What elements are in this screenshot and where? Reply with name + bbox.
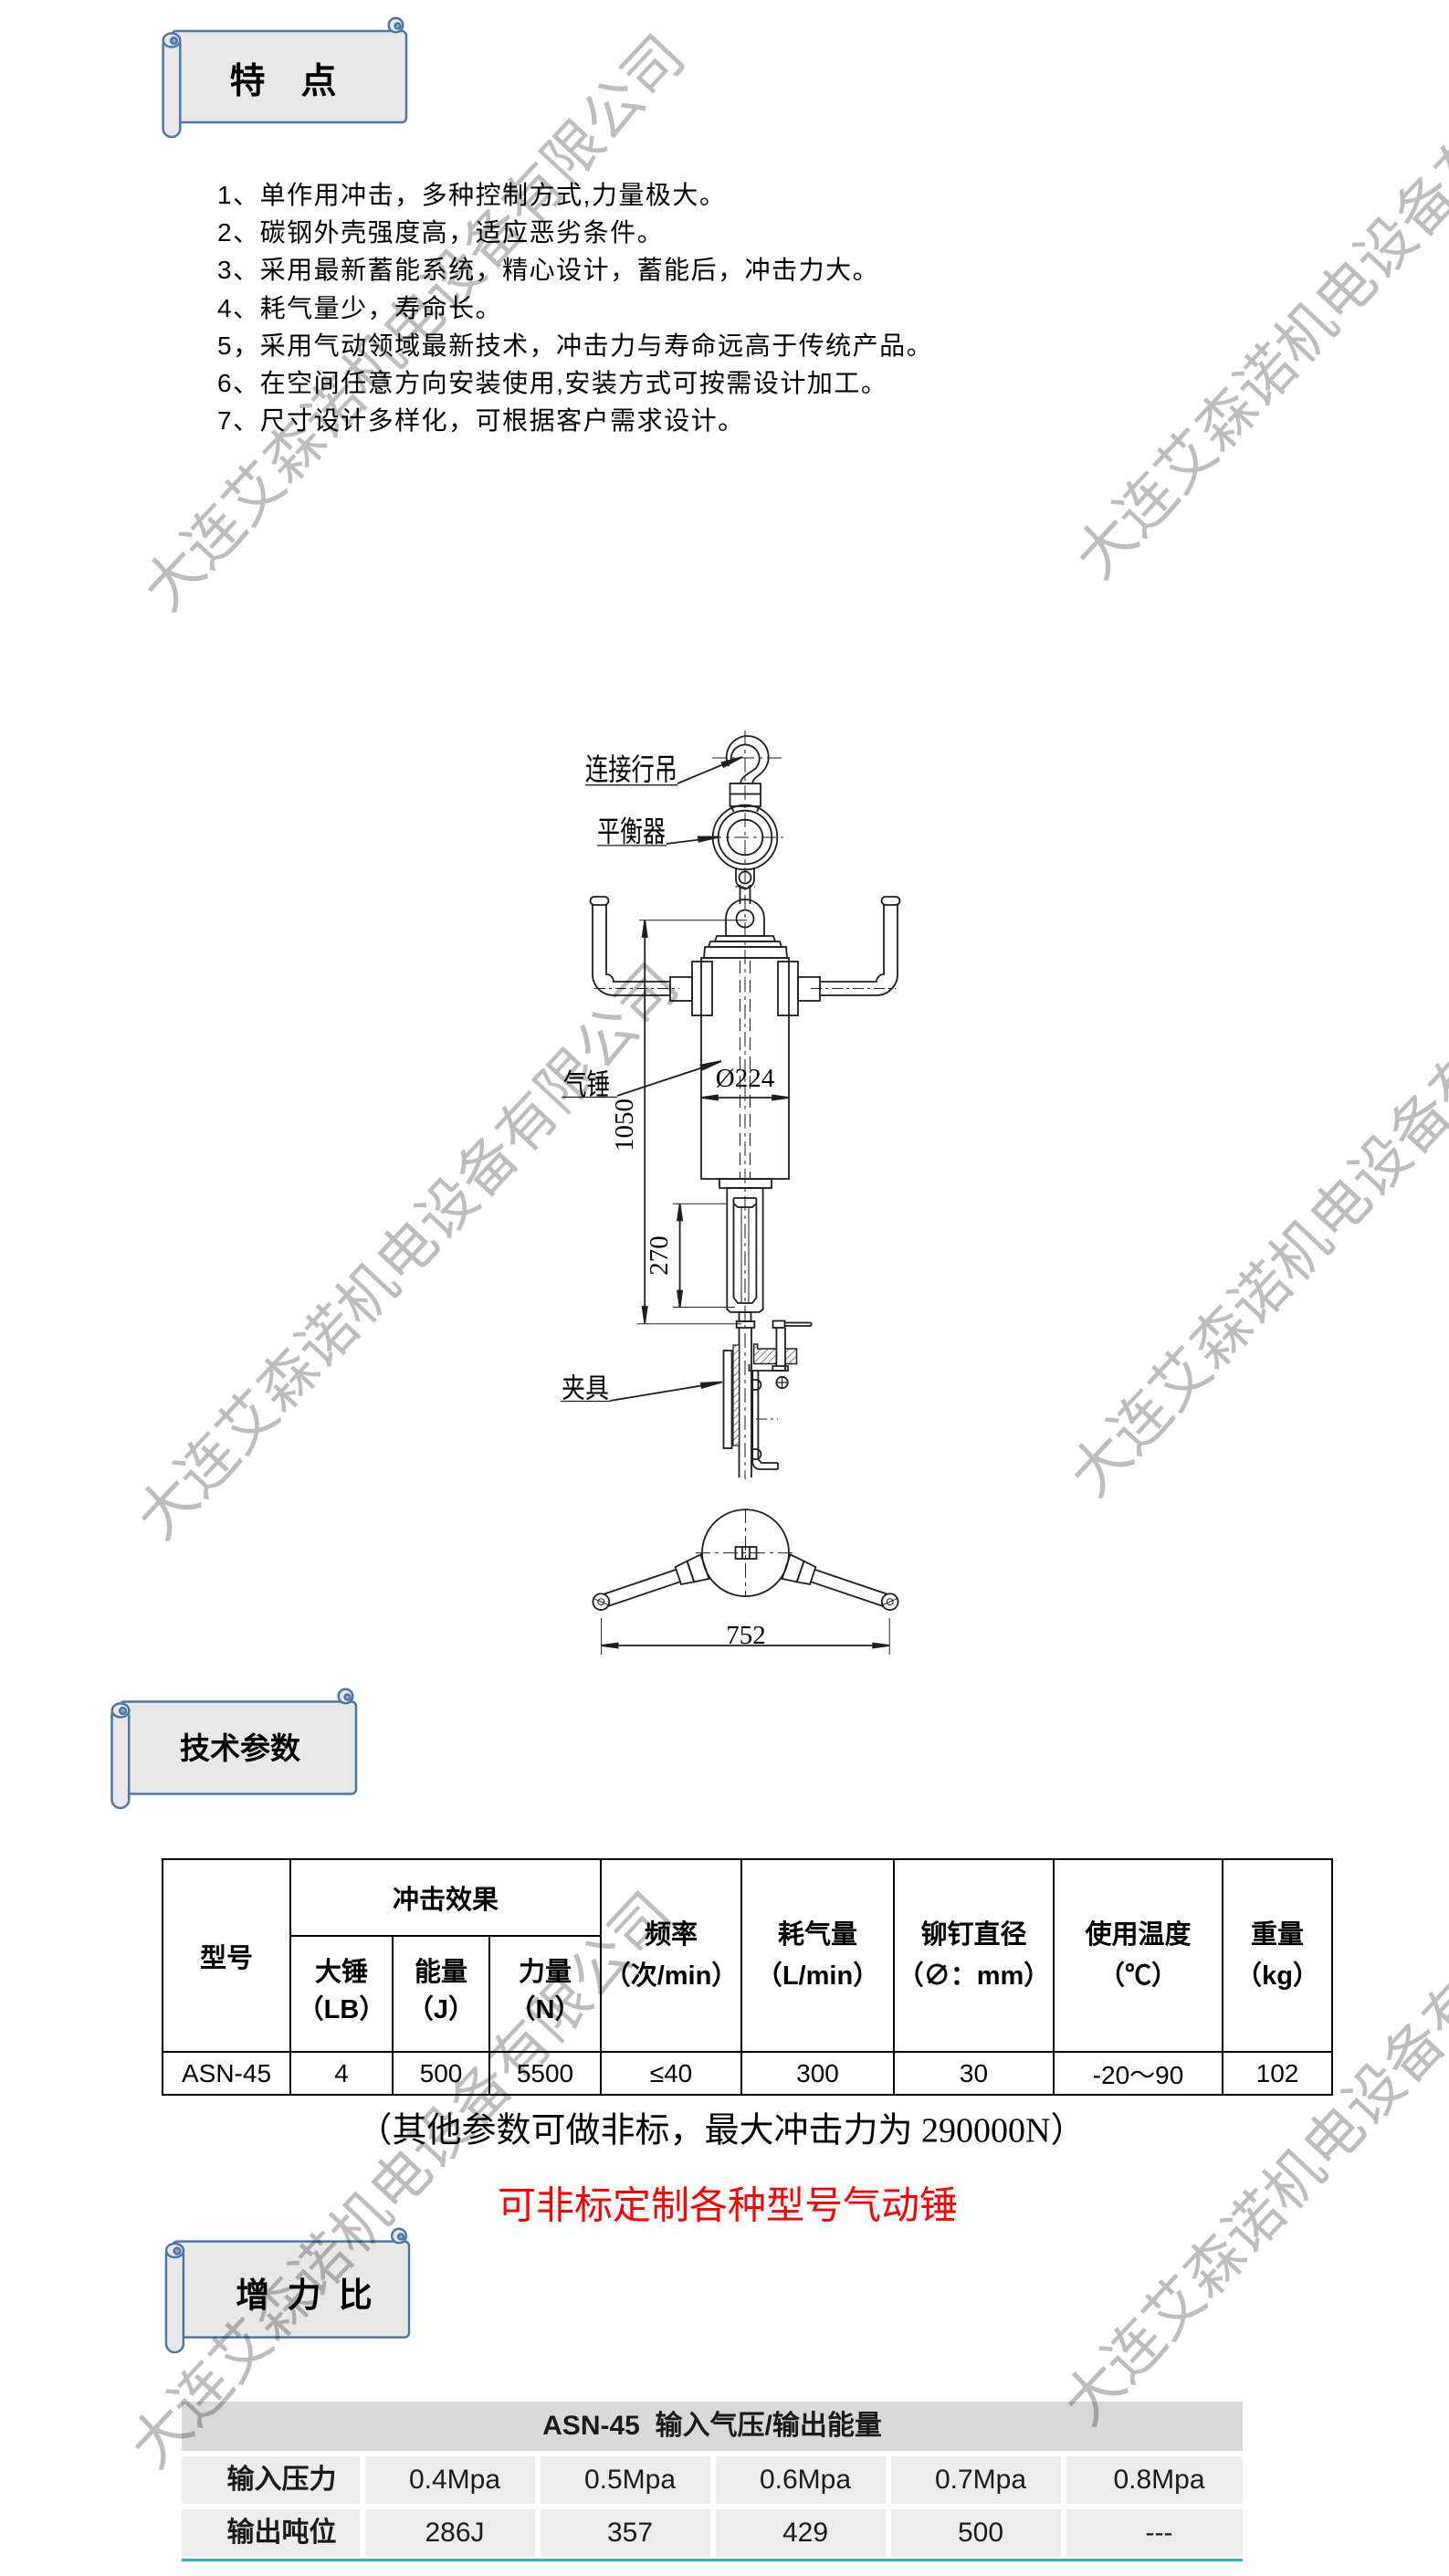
svg-text:大连艾森诺机电设备有限公司: 大连艾森诺机电设备有限公司	[1057, 909, 1449, 1509]
svg-text:大连艾森诺机电设备有限公司: 大连艾森诺机电设备有限公司	[1063, 0, 1449, 591]
svg-text:大连艾森诺机电设备有限公司: 大连艾森诺机电设备有限公司	[131, 24, 697, 623]
svg-text:大连艾森诺机电设备有限公司: 大连艾森诺机电设备有限公司	[124, 952, 690, 1551]
svg-text:大连艾森诺机电设备有限公司: 大连艾森诺机电设备有限公司	[118, 1881, 684, 2480]
svg-text:大连艾森诺机电设备有限公司: 大连艾森诺机电设备有限公司	[1051, 1838, 1449, 2437]
